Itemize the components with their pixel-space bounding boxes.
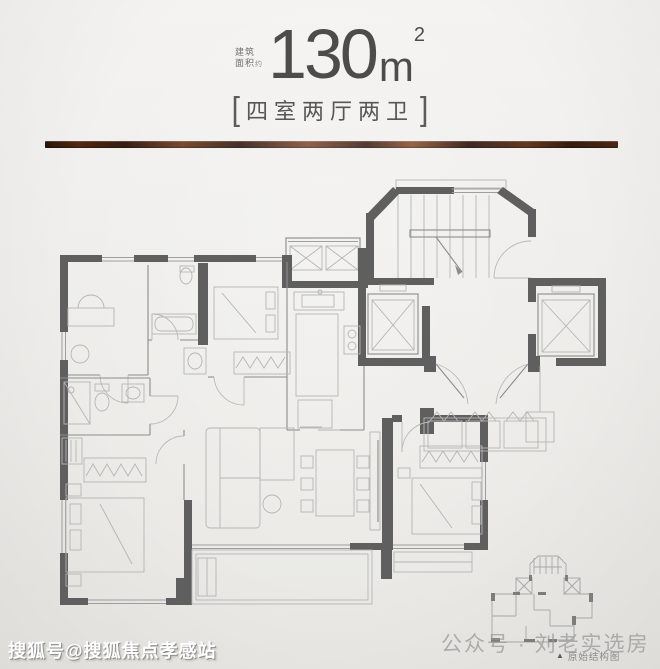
bathroom-top xyxy=(148,263,208,375)
elevator-right-icon xyxy=(528,278,606,366)
master-bathroom xyxy=(60,378,178,435)
watermark-wechat: 公众号 · 刘老实选房 xyxy=(441,628,650,658)
layout-tag: [ 四室两厅两卫 ] xyxy=(232,94,429,126)
area-label: 建筑 面积约 xyxy=(235,47,263,70)
bracket-left: [ xyxy=(232,93,240,127)
master-bedroom xyxy=(62,430,184,586)
area-row: 建筑 面积约 130 m 2 xyxy=(235,26,425,82)
copper-divider-bar xyxy=(45,141,618,148)
floorplan-poster: 建筑 面积约 130 m 2 [ 四室两厅两卫 ] xyxy=(0,0,660,669)
equipment-platform xyxy=(284,238,362,288)
study-room xyxy=(68,295,148,403)
elevator-left-icon xyxy=(358,285,430,366)
watermark-sohu: 搜狐号@搜狐焦点孝感站 xyxy=(8,637,217,663)
balcony xyxy=(192,550,472,604)
bedroom-2 xyxy=(208,262,290,430)
area-unit: m 2 xyxy=(379,51,425,83)
stairwell xyxy=(358,180,536,285)
bracket-right: ] xyxy=(420,93,428,127)
header: 建筑 面积约 130 m 2 [ 四室两厅两卫 ] xyxy=(0,26,660,126)
living-dining xyxy=(206,428,380,530)
kitchen xyxy=(287,248,368,430)
bedroom-3 xyxy=(398,422,482,534)
layout-tag-text: 四室两厅两卫 xyxy=(246,94,414,126)
area-value: 130 xyxy=(268,26,376,82)
